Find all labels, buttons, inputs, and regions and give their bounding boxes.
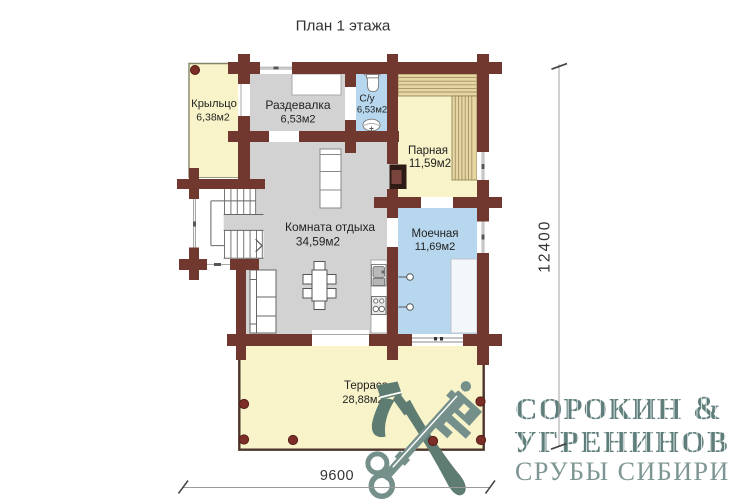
- svg-text:Парная: Парная: [408, 145, 448, 157]
- svg-text:&: &: [693, 390, 721, 427]
- svg-text:План 1 этажа: План 1 этажа: [296, 18, 391, 35]
- svg-text:34,59м2: 34,59м2: [296, 235, 340, 249]
- svg-text:12400: 12400: [537, 220, 554, 273]
- svg-text:6,53м2: 6,53м2: [280, 114, 315, 126]
- svg-text:С/у: С/у: [359, 94, 375, 105]
- svg-text:Крыльцо: Крыльцо: [191, 98, 237, 110]
- svg-text:СРУБЫ СИБИРИ: СРУБЫ СИБИРИ: [515, 457, 730, 486]
- svg-text:28,88м2: 28,88м2: [342, 394, 383, 406]
- svg-text:11,59м2: 11,59м2: [409, 158, 451, 170]
- svg-text:УГРЕНИНОВ: УГРЕНИНОВ: [514, 424, 729, 459]
- svg-text:Моечная: Моечная: [411, 228, 458, 240]
- svg-text:6,53м2: 6,53м2: [357, 105, 387, 116]
- svg-text:Комната отдыха: Комната отдыха: [285, 220, 375, 234]
- svg-text:9600: 9600: [320, 468, 354, 484]
- svg-text:Раздевалка: Раздевалка: [265, 98, 330, 112]
- svg-text:11,69м2: 11,69м2: [415, 241, 455, 253]
- svg-text:СОРОКИН: СОРОКИН: [515, 391, 682, 426]
- svg-text:6,38м2: 6,38м2: [196, 112, 230, 124]
